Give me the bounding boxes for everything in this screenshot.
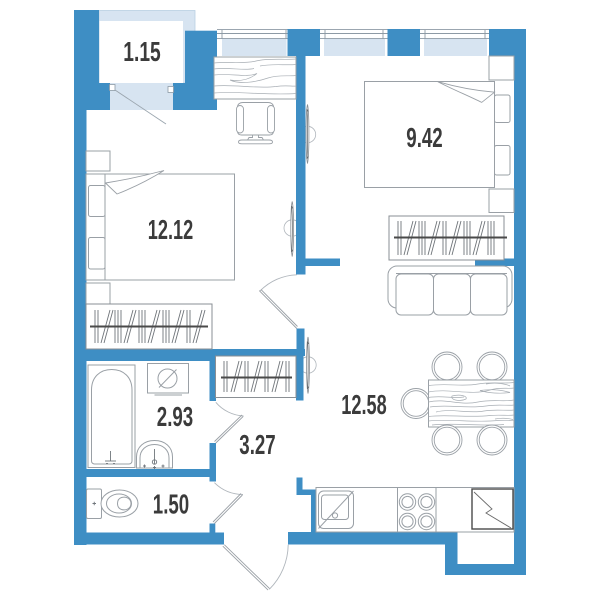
svg-text:9.42: 9.42 bbox=[406, 122, 442, 152]
svg-text:1.15: 1.15 bbox=[123, 38, 160, 68]
svg-text:3.27: 3.27 bbox=[239, 429, 275, 459]
svg-text:1.50: 1.50 bbox=[153, 489, 189, 519]
svg-text:12.58: 12.58 bbox=[341, 389, 386, 420]
svg-text:12.12: 12.12 bbox=[148, 214, 193, 245]
svg-text:2.93: 2.93 bbox=[157, 401, 193, 431]
